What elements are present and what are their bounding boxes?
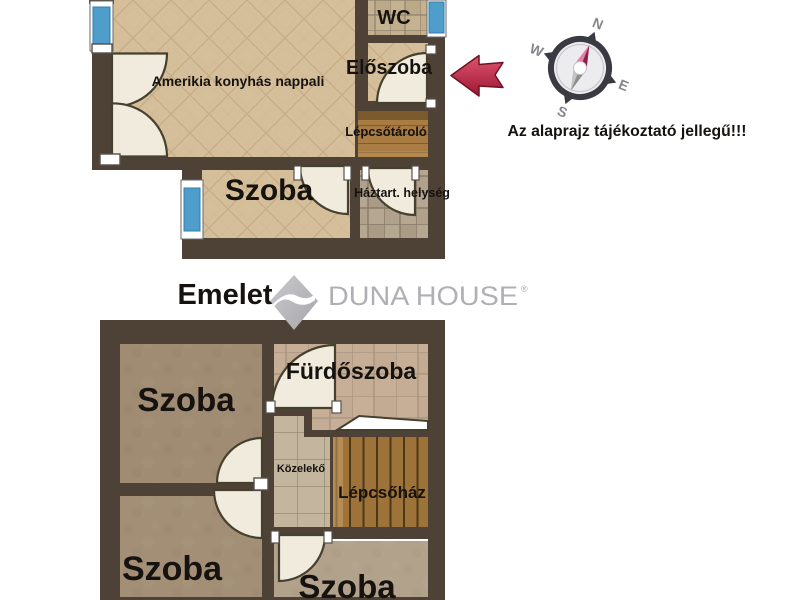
svg-text:DUNA HOUSE: DUNA HOUSE bbox=[328, 281, 518, 311]
svg-text:Szoba: Szoba bbox=[298, 568, 396, 600]
svg-text:Közelekő: Közelekő bbox=[277, 463, 326, 475]
svg-text:Háztart. helység: Háztart. helység bbox=[354, 186, 450, 200]
svg-text:Szoba: Szoba bbox=[122, 550, 223, 588]
svg-text:Előszoba: Előszoba bbox=[346, 57, 433, 79]
svg-text:Az alaprajz tájékoztató jelleg: Az alaprajz tájékoztató jellegű!!! bbox=[508, 123, 747, 140]
svg-text:®: ® bbox=[521, 284, 528, 294]
svg-text:Lépcsőtároló: Lépcsőtároló bbox=[345, 124, 427, 139]
svg-text:Szoba: Szoba bbox=[137, 381, 235, 418]
svg-text:WC: WC bbox=[377, 7, 410, 29]
svg-text:Emelet: Emelet bbox=[177, 279, 272, 311]
svg-text:Fürdőszoba: Fürdőszoba bbox=[286, 358, 417, 384]
svg-text:Szoba: Szoba bbox=[225, 174, 314, 207]
svg-text:Lépcsőház: Lépcsőház bbox=[338, 483, 426, 502]
svg-text:Amerikia konyhás nappali: Amerikia konyhás nappali bbox=[152, 73, 325, 89]
